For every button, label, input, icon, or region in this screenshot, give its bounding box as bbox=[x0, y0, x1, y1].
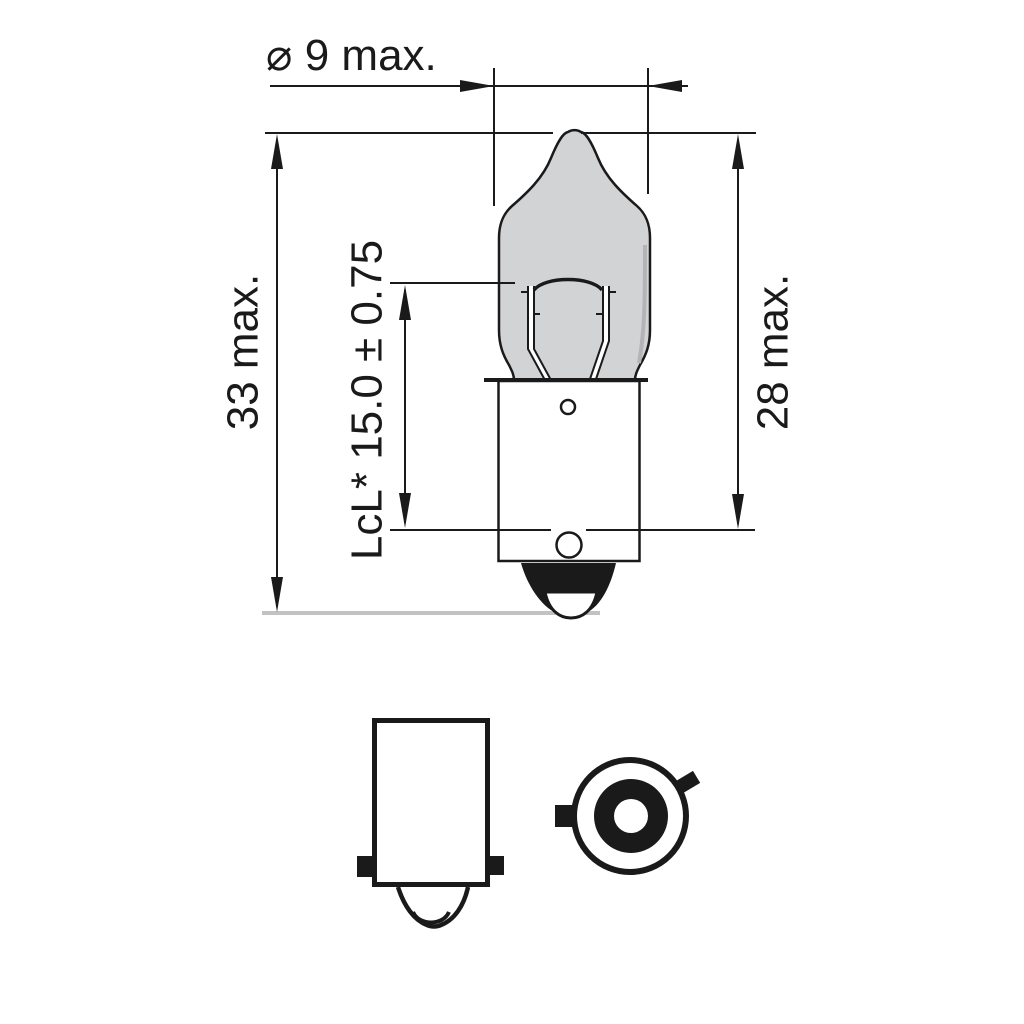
bayonet-pin-left bbox=[357, 856, 373, 877]
diameter-dimension: ⌀ 9 max. bbox=[266, 31, 688, 206]
envelope-length-dimension: 28 max. bbox=[732, 134, 797, 529]
base-pin-hole bbox=[557, 533, 582, 558]
base-end-view bbox=[555, 760, 700, 872]
arrowhead-up-icon bbox=[399, 285, 411, 320]
lcl-label: LcL* 15.0 ± 0.75 bbox=[342, 240, 391, 560]
arrowhead-up-icon bbox=[271, 134, 283, 169]
base-body bbox=[375, 721, 488, 885]
bayonet-pin-left bbox=[555, 805, 573, 827]
diameter-dimension-label: ⌀ 9 max. bbox=[266, 31, 437, 80]
bulb-main-view bbox=[484, 130, 650, 618]
arrowhead-down-icon bbox=[732, 494, 744, 529]
technical-drawing-canvas: ⌀ 9 max. 33 max. LcL* 15.0 ± 0.75 28 max… bbox=[0, 0, 1024, 1024]
bayonet-pin-right bbox=[489, 856, 504, 875]
envelope-length-label: 28 max. bbox=[748, 274, 797, 431]
base-side-view bbox=[357, 721, 504, 927]
arrowhead-left-icon bbox=[648, 80, 682, 92]
contact-center-hole bbox=[614, 799, 648, 833]
metal-base bbox=[484, 380, 648, 618]
arrowhead-down-icon bbox=[271, 577, 283, 612]
bulb-dimension-drawing: ⌀ 9 max. 33 max. LcL* 15.0 ± 0.75 28 max… bbox=[0, 0, 1024, 1024]
overall-length-label: 33 max. bbox=[218, 274, 267, 431]
glass-envelope bbox=[499, 130, 650, 380]
arrowhead-down-icon bbox=[399, 493, 411, 528]
overall-length-dimension: 33 max. bbox=[218, 134, 283, 612]
arrowhead-right-icon bbox=[460, 80, 494, 92]
base-vent-hole bbox=[561, 400, 575, 414]
arrowhead-up-icon bbox=[732, 134, 744, 169]
